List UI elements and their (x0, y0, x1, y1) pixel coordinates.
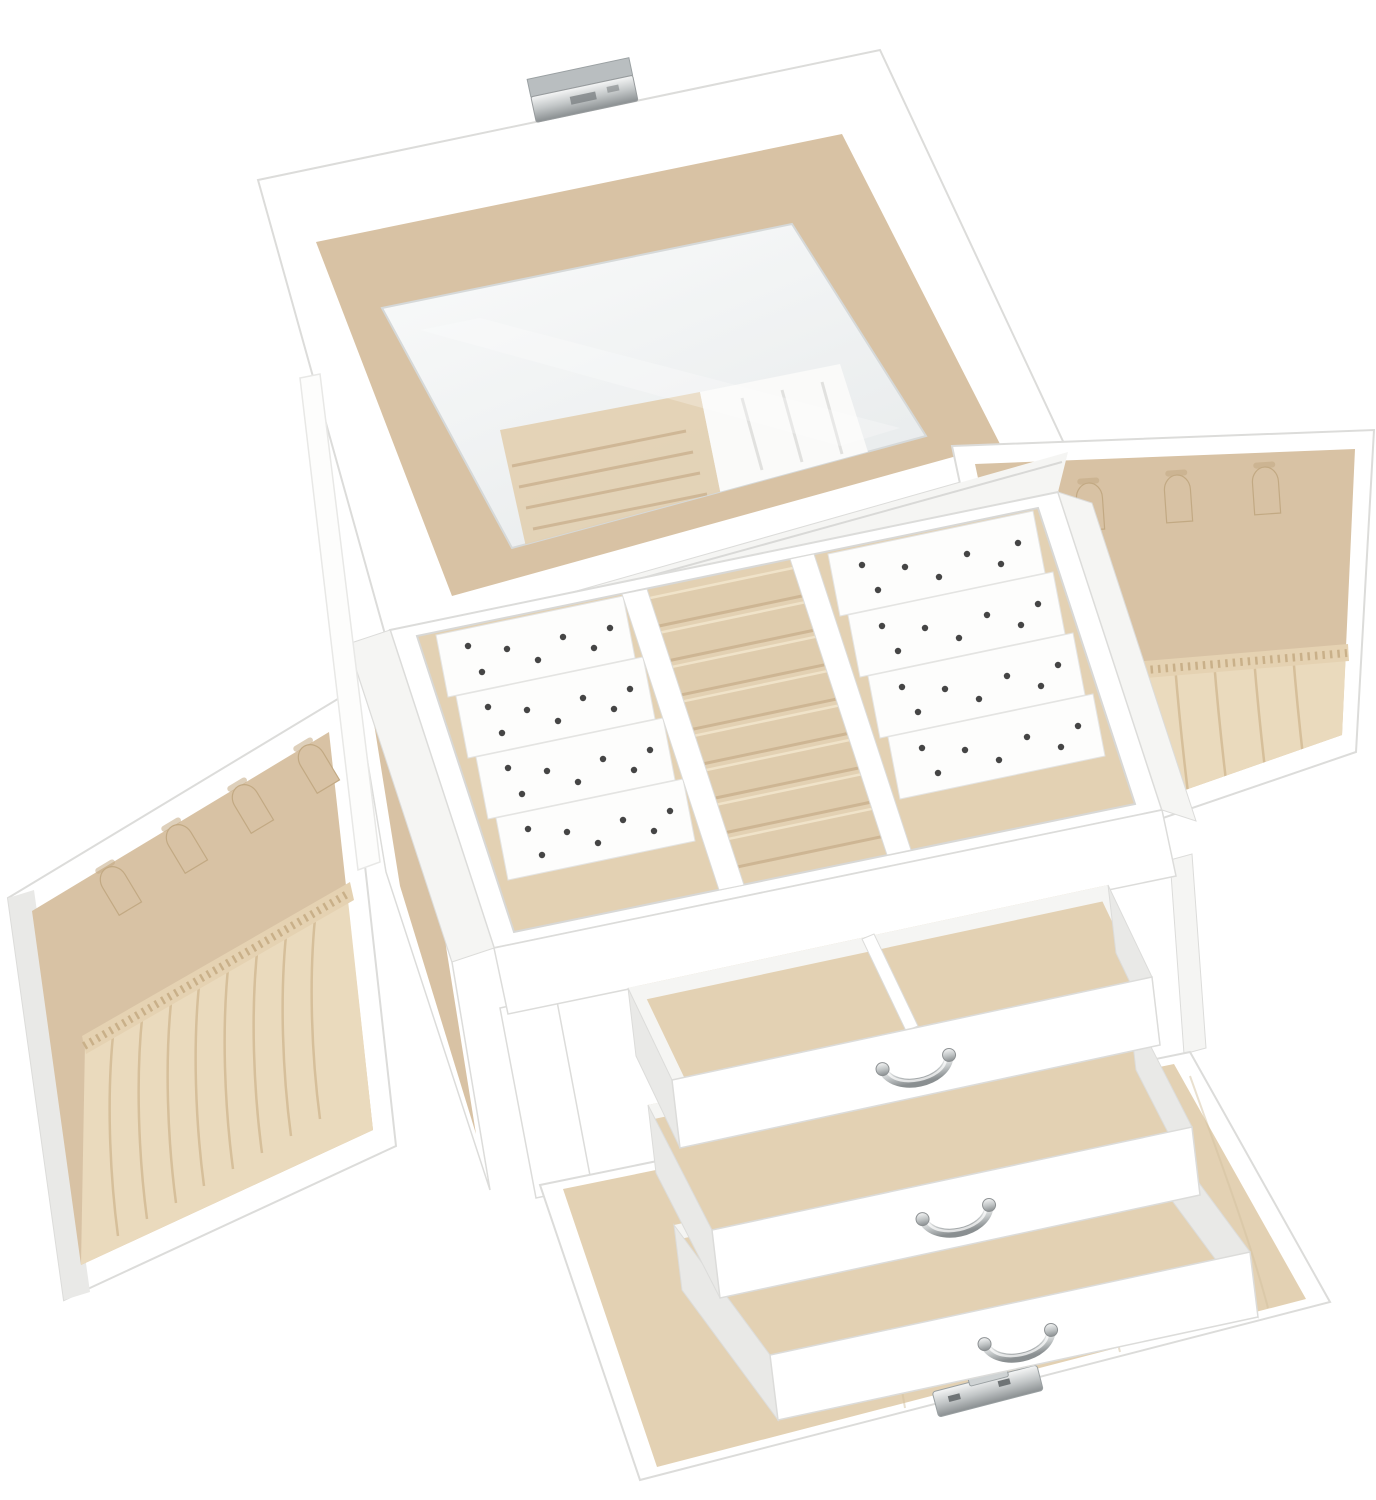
product-image (0, 0, 1376, 1500)
box-front-right-post (1170, 854, 1206, 1054)
jewelry-box-photo (0, 0, 1376, 1500)
left-door (8, 694, 396, 1300)
box-front-left-post (500, 996, 592, 1198)
